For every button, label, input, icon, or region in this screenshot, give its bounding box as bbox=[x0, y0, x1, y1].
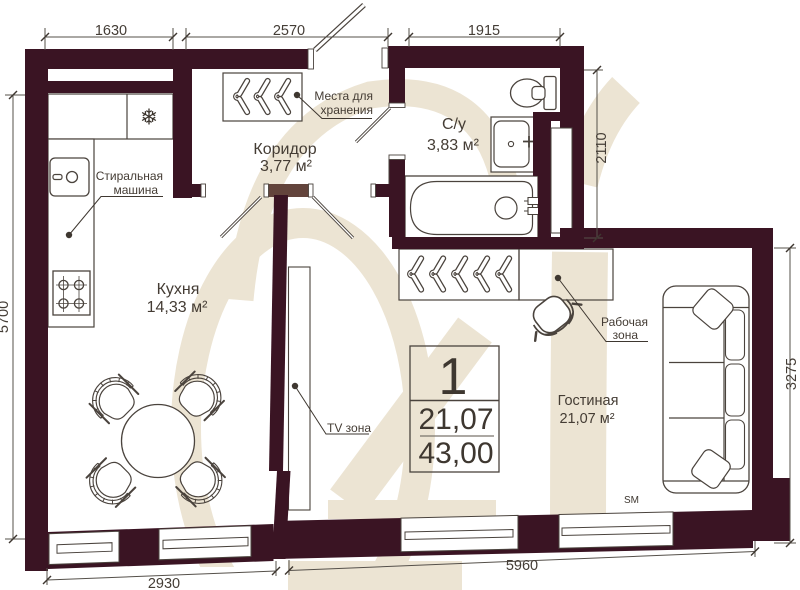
svg-text:3,77 м²: 3,77 м² bbox=[260, 158, 313, 175]
svg-text:машина: машина bbox=[113, 183, 158, 197]
svg-text:Коридор: Коридор bbox=[253, 141, 316, 158]
svg-text:С/у: С/у bbox=[442, 116, 466, 133]
svg-text:21,07 м²: 21,07 м² bbox=[559, 411, 614, 427]
svg-text:5960: 5960 bbox=[506, 558, 538, 574]
svg-text:SM: SM bbox=[624, 495, 639, 506]
svg-text:5700: 5700 bbox=[0, 301, 12, 333]
svg-text:Кухня: Кухня bbox=[157, 281, 200, 298]
svg-text:14,33 м²: 14,33 м² bbox=[147, 299, 208, 316]
svg-text:хранения: хранения bbox=[321, 103, 373, 117]
svg-text:Рабочая: Рабочая bbox=[601, 315, 648, 329]
svg-text:Стиральная: Стиральная bbox=[96, 169, 163, 183]
svg-text:1630: 1630 bbox=[95, 23, 127, 39]
svg-text:1: 1 bbox=[439, 348, 468, 406]
svg-text:Места для: Места для bbox=[314, 89, 373, 103]
svg-text:зона: зона bbox=[613, 328, 639, 342]
svg-text:TV зона: TV зона bbox=[327, 421, 371, 435]
svg-text:Гостиная: Гостиная bbox=[558, 393, 619, 409]
svg-text:43,00: 43,00 bbox=[418, 437, 493, 470]
svg-text:3275: 3275 bbox=[784, 358, 800, 390]
svg-text:21,07: 21,07 bbox=[418, 403, 493, 436]
svg-text:2110: 2110 bbox=[594, 132, 610, 163]
svg-text:1915: 1915 bbox=[468, 23, 500, 39]
svg-text:2930: 2930 bbox=[148, 576, 180, 590]
svg-text:2570: 2570 bbox=[273, 23, 305, 39]
svg-text:3,83 м²: 3,83 м² bbox=[427, 137, 480, 154]
